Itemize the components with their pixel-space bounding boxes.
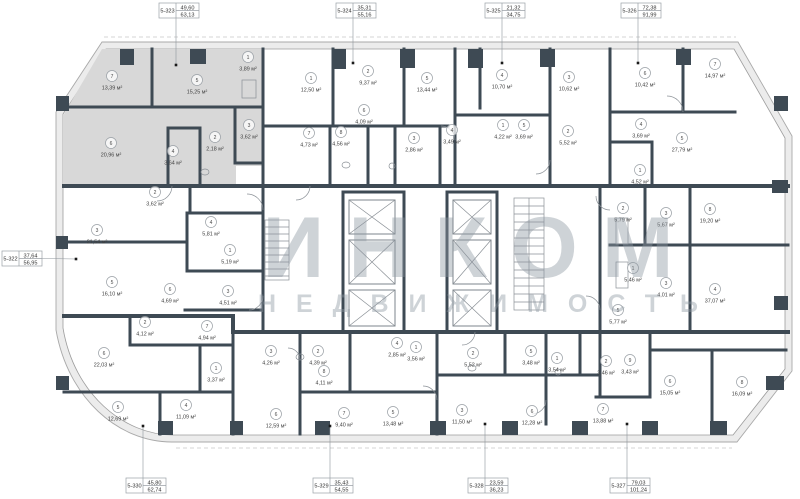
room-number: 5 (117, 405, 120, 411)
room-number: 1 (502, 123, 505, 129)
room-area: 13,39 м² (102, 86, 123, 92)
callout-area-top: 49,60 (181, 5, 195, 11)
callout-area-bottom: 63,13 (181, 13, 195, 19)
room-number: 2 (567, 129, 570, 135)
callout-area-top: 72,38 (643, 5, 657, 11)
room-number: 4 (640, 122, 643, 128)
room-area: 4,56 м² (332, 142, 350, 148)
room-number: 6 (669, 379, 672, 385)
callout-area-bottom: 54,55 (335, 488, 349, 494)
room-area: 11,09 м² (176, 415, 196, 421)
room-number: 1 (415, 345, 418, 351)
room-area: 2,18 м² (206, 147, 224, 153)
room-area: 11,50 м² (452, 420, 472, 426)
room-area: 14,97 м² (705, 74, 726, 80)
callout-area-top: 79,03 (632, 480, 646, 486)
room-number: 3 (461, 408, 464, 414)
room-area: 12,59 м² (266, 424, 287, 430)
callout-anchor-dot (626, 423, 629, 426)
callout-anchor-dot (501, 62, 504, 65)
room-number: 7 (308, 131, 311, 137)
room-number: 5 (426, 76, 429, 82)
room-area: 3,69 м² (632, 134, 650, 140)
room-area: 22,03 м² (94, 363, 115, 369)
room-number: 2 (317, 349, 320, 355)
room-area: 3,64 м² (164, 161, 182, 167)
callout-anchor-dot (352, 62, 355, 65)
callout-unit-id: 5-326 (622, 9, 636, 15)
room-number: 1 (215, 366, 218, 372)
callout-area-top: 45,80 (148, 480, 162, 486)
room-number: 3 (248, 123, 251, 129)
callout-area-top: 35,31 (358, 5, 372, 11)
room-number: 4 (210, 220, 213, 226)
room-number: 5 (111, 280, 114, 286)
room-number: 1 (556, 356, 559, 362)
room-number: 8 (709, 207, 712, 213)
room-number: 3 (270, 349, 273, 355)
room-area: 12,50 м² (301, 88, 322, 94)
room-number: 6 (644, 71, 647, 77)
room-area: 5,81 м² (202, 232, 220, 238)
room-number: 8 (323, 369, 326, 375)
room-area: 4,09 м² (355, 120, 373, 126)
room-number: 2 (144, 320, 147, 326)
callout-unit-id: 5-329 (314, 484, 328, 490)
callout-unit-id: 5-328 (469, 484, 483, 490)
callout-area-top: 23,59 (490, 480, 504, 486)
room-area: 4,73 м² (300, 143, 318, 149)
callout-anchor-dot (637, 62, 640, 65)
watermark: ИНКОМ НЕДВИЖИМОСТЬ (258, 200, 718, 318)
room-area: 3,62 м² (240, 135, 258, 141)
room-number: 7 (714, 62, 717, 68)
room-number: 6 (110, 141, 113, 147)
callout-unit-id: 5-325 (486, 9, 500, 15)
room-number: 5 (523, 123, 526, 129)
callout-area-top: 35,43 (335, 480, 349, 486)
room-area: 10,42 м² (635, 83, 656, 89)
room-number: 6 (103, 351, 106, 357)
room-number: 4 (172, 149, 175, 155)
room-number: 7 (343, 411, 346, 417)
callout-anchor-dot (329, 425, 332, 428)
room-area: 12,28 м² (522, 421, 543, 427)
room-area: 15,25 м² (187, 90, 208, 96)
room-area: 3,48 м² (522, 361, 540, 367)
room-area: 3,46 м² (597, 371, 615, 377)
callout-unit-id: 5-323 (160, 9, 174, 15)
room-area: 3,43 м² (621, 370, 639, 376)
room-number: 3 (413, 136, 416, 142)
room-number: 5 (530, 349, 533, 355)
callout-unit-id: 5-324 (337, 9, 351, 15)
room-number: 2 (472, 351, 475, 357)
room-area: 2,85 м² (388, 353, 406, 359)
callout-area-bottom: 55,16 (358, 13, 372, 19)
room-number: 3 (227, 289, 230, 295)
callout-area-bottom: 101,24 (630, 488, 647, 494)
room-number: 1 (639, 168, 642, 174)
callout-area-bottom: 36,23 (490, 488, 504, 494)
room-number: 7 (206, 324, 209, 330)
room-number: 2 (214, 135, 217, 141)
room-number: 4 (451, 128, 454, 134)
room-number: 8 (741, 380, 744, 386)
room-area: 4,11 м² (315, 381, 332, 387)
room-number: 3 (568, 75, 571, 81)
callout-area-bottom: 62,74 (148, 488, 162, 494)
room-area: 13,44 м² (417, 88, 438, 94)
watermark-line2: НЕДВИЖИМОСТЬ (258, 290, 718, 318)
callout-anchor-dot (142, 425, 145, 428)
room-area: 13,48 м² (383, 422, 404, 428)
room-area: 12,69 м² (108, 417, 129, 423)
room-number: 1 (229, 248, 232, 254)
room-area: 5,19 м² (221, 260, 239, 266)
callout-anchor-dot (484, 423, 487, 426)
callout-unit-id: 5-322 (3, 257, 17, 263)
room-number: 9 (629, 358, 632, 364)
room-number: 2 (605, 359, 608, 365)
callout-area-bottom: 34,75 (507, 13, 521, 19)
room-area: 4,51 м² (219, 301, 237, 307)
room-area: 5,52 м² (559, 141, 577, 147)
room-area: 15,05 м² (660, 391, 681, 397)
room-area: 9,37 м² (359, 81, 377, 87)
room-number: 6 (363, 108, 366, 114)
room-number: 5 (681, 136, 684, 142)
room-area: 19,20 м² (700, 219, 721, 225)
room-area: 4,69 м² (161, 299, 179, 305)
room-number: 8 (340, 130, 343, 136)
room-area: 4,12 м² (136, 332, 154, 338)
room-area: 3,49 м² (443, 140, 461, 146)
room-number: 1 (247, 55, 250, 61)
room-area: 5,52 м² (464, 363, 482, 369)
callout-area-top: 37,64 (24, 253, 38, 259)
callout-unit-id: 5-330 (127, 484, 141, 490)
room-area: 3,56 м² (407, 357, 425, 363)
room-number: 4 (185, 403, 188, 409)
room-area: 20,96 м² (101, 153, 122, 159)
room-area: 4,52 м² (631, 180, 649, 186)
room-number: 1 (310, 76, 313, 82)
room-area: 16,10 м² (102, 292, 123, 298)
room-number: 6 (169, 287, 172, 293)
room-area: 2,86 м² (405, 148, 423, 154)
room-area: 4,26 м² (262, 361, 280, 367)
room-area: 10,70 м² (492, 85, 513, 91)
callout-anchor-dot (75, 258, 78, 261)
room-area: 4,94 м² (198, 336, 216, 342)
room-area: 9,40 м² (335, 423, 353, 429)
room-area: 16,09 м² (732, 392, 753, 398)
room-area: 21,54 м² (87, 240, 108, 246)
room-area: 27,79 м² (672, 148, 693, 154)
room-number: 2 (367, 69, 370, 75)
room-area: 3,89 м² (239, 67, 257, 73)
room-number: 5 (392, 410, 395, 416)
room-area: 3,62 м² (146, 202, 164, 208)
room-number: 4 (501, 73, 504, 79)
room-number: 2 (154, 190, 157, 196)
callout-area-bottom: 91,99 (643, 13, 657, 19)
room-number: 7 (111, 74, 114, 80)
room-area: 5,77 м² (609, 320, 627, 326)
room-number: 7 (602, 407, 605, 413)
room-number: 4 (396, 341, 399, 347)
floor-plan-svg: 713,39 м²515,25 м²13,89 м²620,96 м²43,64… (0, 0, 800, 499)
room-area: 4,22 м² (494, 135, 512, 141)
floor-plan: 713,39 м²515,25 м²13,89 м²620,96 м²43,64… (0, 0, 800, 499)
room-area: 13,88 м² (593, 419, 614, 425)
callout-unit-id: 5-327 (611, 484, 625, 490)
room-area: 10,62 м² (559, 87, 580, 93)
room-number: 5 (196, 78, 199, 84)
room-number: 6 (531, 409, 534, 415)
callout-anchor-dot (175, 64, 178, 67)
room-area: 3,54 м² (548, 368, 566, 374)
watermark-line1: ИНКОМ (263, 200, 698, 296)
callout-area-top: 21,32 (507, 5, 521, 11)
room-number: 3 (96, 228, 99, 234)
callout-area-bottom: 56,95 (24, 261, 38, 267)
room-area: 3,37 м² (207, 378, 225, 384)
room-area: 3,69 м² (515, 135, 533, 141)
room-number: 6 (275, 412, 278, 418)
